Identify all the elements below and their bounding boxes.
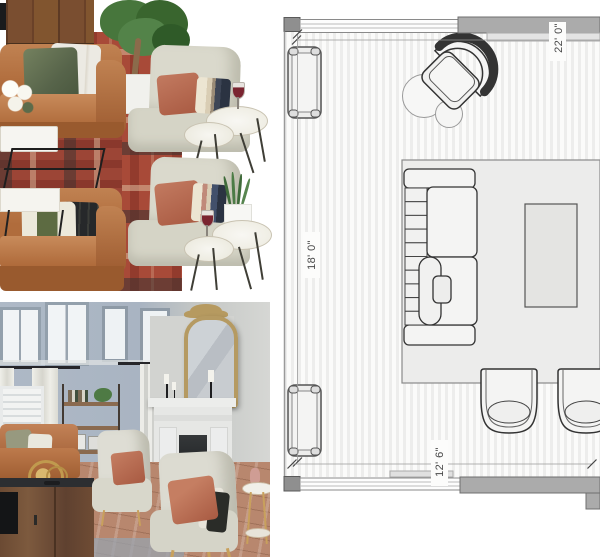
plan-right-wall-jog bbox=[586, 493, 600, 509]
floor-plan: 22' 0" 18' 0" 12' 6" bbox=[0, 0, 600, 557]
plan-dimension-label-top: 22' 0" bbox=[553, 23, 565, 53]
plan-barrel-chair-right bbox=[558, 369, 600, 433]
plan-top-wall bbox=[458, 17, 600, 33]
plan-sofa-tray bbox=[433, 276, 451, 303]
plan-top-window bbox=[300, 20, 458, 33]
interior-design-board: 22' 0" 18' 0" 12' 6" bbox=[0, 0, 600, 557]
plan-sofa bbox=[404, 169, 477, 345]
plan-dimension-label-bottom: 12' 6" bbox=[434, 447, 446, 477]
plan-bottom-wall bbox=[460, 477, 600, 493]
plan-barrel-chair-left bbox=[481, 369, 537, 433]
plan-corner-wall-topleft bbox=[284, 18, 300, 32]
plan-wall-console-bottom bbox=[288, 385, 321, 456]
plan-wall-console-top bbox=[288, 47, 321, 118]
plan-corner-wall-bottomleft bbox=[284, 477, 300, 492]
plan-coffee-table bbox=[525, 204, 577, 307]
plan-dimension-label-left: 18' 0" bbox=[306, 240, 318, 270]
